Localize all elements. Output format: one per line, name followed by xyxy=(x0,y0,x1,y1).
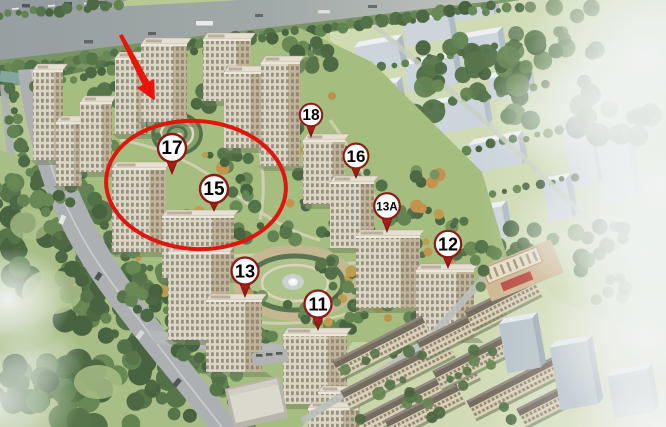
svg-text:13: 13 xyxy=(235,262,255,282)
svg-text:17: 17 xyxy=(161,138,182,159)
svg-text:16: 16 xyxy=(347,147,366,166)
svg-text:13A: 13A xyxy=(376,200,398,214)
svg-text:12: 12 xyxy=(438,235,458,255)
svg-text:11: 11 xyxy=(308,295,327,315)
svg-text:15: 15 xyxy=(203,179,225,200)
svg-text:18: 18 xyxy=(302,107,320,124)
